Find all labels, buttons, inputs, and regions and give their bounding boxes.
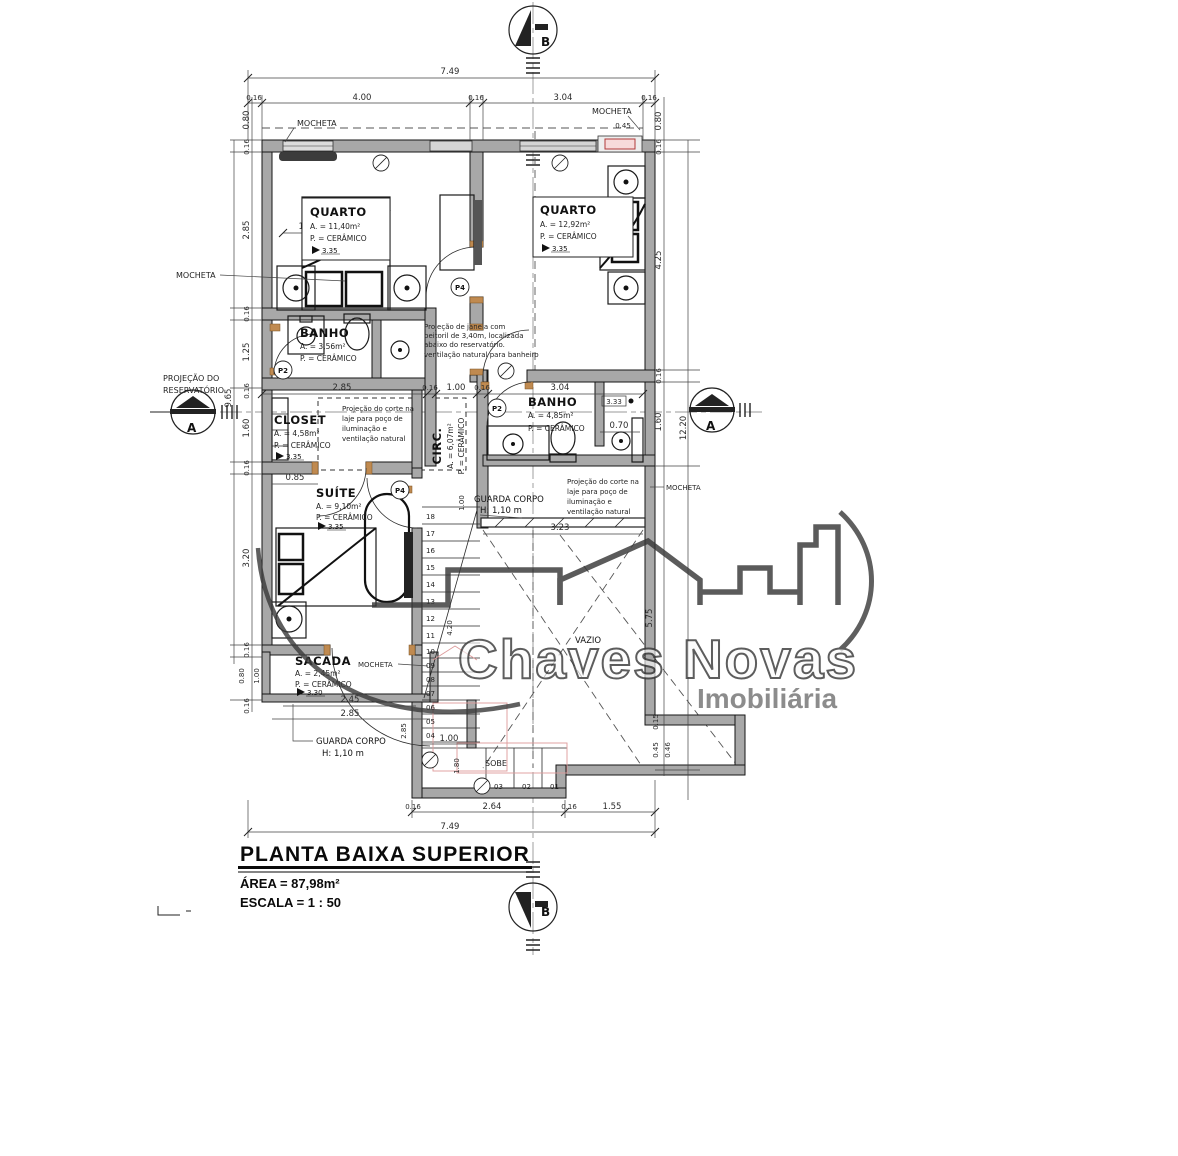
reservoir-projection-label: PROJEÇÃO DO bbox=[163, 373, 219, 383]
dim: 4.20 bbox=[446, 620, 454, 636]
dim: 3.04 bbox=[551, 383, 570, 393]
room-label-suite: SUÍTE bbox=[316, 485, 356, 500]
svg-text:A: A bbox=[706, 419, 716, 433]
stair-step: 01 bbox=[550, 783, 559, 791]
stair-step: 09 bbox=[426, 662, 435, 670]
dim: 0.16 bbox=[405, 803, 421, 811]
room-area: A. = 11,40m² bbox=[310, 222, 360, 231]
dim: 0.16 bbox=[243, 642, 251, 658]
plan-area: ÁREA = 87,98m² bbox=[240, 876, 340, 891]
guardrail-label: GUARDA CORPO bbox=[474, 495, 544, 505]
plan-scale: ESCALA = 1 : 50 bbox=[240, 895, 341, 910]
dim: 0.16 bbox=[243, 383, 251, 399]
window-marker bbox=[552, 155, 568, 171]
watermark-brand: Chaves Novas bbox=[458, 628, 858, 690]
plan-title: PLANTA BAIXA SUPERIOR bbox=[240, 843, 530, 866]
room-floor: P. = CERÂMICO bbox=[316, 513, 373, 522]
window-marker bbox=[373, 155, 389, 171]
room-area: A. = 4,85m² bbox=[528, 411, 573, 420]
mocheta-label: MOCHETA bbox=[176, 271, 216, 280]
room-floor: P. = CERÂMICO bbox=[300, 354, 357, 363]
dim: 3.20 bbox=[242, 549, 252, 568]
dim: 0.16 bbox=[422, 384, 438, 392]
dim: 1.60 bbox=[654, 413, 664, 432]
dim: 2.85 bbox=[242, 221, 252, 240]
wardrobe bbox=[440, 195, 474, 270]
slab-cut-note: iluminação e bbox=[342, 425, 387, 433]
door-marker-p4: P4 bbox=[451, 278, 469, 296]
svg-text:B: B bbox=[541, 905, 550, 919]
room-floor: P. = CERÂMICO bbox=[457, 418, 466, 475]
dim: 0.16 bbox=[655, 368, 663, 384]
stair-step: 14 bbox=[426, 581, 435, 589]
dim: 1.00 bbox=[253, 668, 261, 684]
window-note: ventilação natural para banheiro bbox=[424, 351, 539, 359]
svg-text:P4: P4 bbox=[395, 487, 405, 495]
svg-text:B: B bbox=[541, 35, 550, 49]
room-label-circ: CIRC. bbox=[430, 428, 444, 465]
dim: 0.15 bbox=[652, 714, 660, 730]
room-area: A. = 12,92m² bbox=[540, 220, 590, 229]
room-area: A. = 6,07m² bbox=[446, 423, 455, 468]
dim: 0.80 bbox=[238, 668, 246, 684]
window-marker bbox=[498, 363, 514, 379]
room-label-closet: CLOSET bbox=[274, 413, 326, 427]
dim: 1.00 bbox=[440, 734, 459, 744]
door-marker-p4: P4 bbox=[391, 481, 409, 499]
dim: 0.16 bbox=[246, 94, 262, 102]
floor-plan-page: 7.49 0.16 4.00 0.16 3.04 0.16 0.16 2.64 … bbox=[0, 0, 1178, 1156]
room-label-quarto1: QUARTO bbox=[310, 205, 367, 219]
slab-cut-note: laje para poço de bbox=[342, 415, 403, 423]
dim: 2.85 bbox=[341, 709, 360, 719]
stair-step: 18 bbox=[426, 513, 435, 521]
slab-cut-note: Projeção do corte na bbox=[342, 405, 414, 413]
window-note: abaixo do reservatório. bbox=[424, 341, 505, 349]
dim: 0.46 bbox=[664, 742, 672, 758]
dim: 0.80 bbox=[654, 112, 664, 131]
dim: 1.80 bbox=[453, 758, 461, 774]
stair-step: 07 bbox=[426, 690, 435, 698]
room-floor: P. = CERÂMICO bbox=[310, 234, 367, 243]
room-area: A. = 4,58m² bbox=[274, 429, 319, 438]
dim: 0.16 bbox=[243, 306, 251, 322]
dim: 1.55 bbox=[603, 802, 622, 812]
dim: 1.00 bbox=[447, 383, 466, 393]
dim: 2.85 bbox=[400, 723, 408, 739]
stair-step: 16 bbox=[426, 547, 435, 555]
dim: 3.23 bbox=[551, 523, 570, 533]
svg-text:P2: P2 bbox=[278, 367, 288, 375]
floor-plan-drawing: 7.49 0.16 4.00 0.16 3.04 0.16 0.16 2.64 … bbox=[0, 0, 1178, 1156]
dim: 0.85 bbox=[286, 473, 305, 483]
slab-cut-note: ventilação natural bbox=[342, 435, 406, 443]
dim: 5.75 bbox=[645, 609, 655, 628]
window-note: Projeção de janela com bbox=[424, 323, 506, 331]
stair-step: 04 bbox=[426, 732, 435, 740]
guardrail-label: GUARDA CORPO bbox=[316, 737, 386, 747]
window-note: peitoril de 3,40m, localizada bbox=[424, 332, 524, 340]
dim: 1.00 bbox=[458, 495, 466, 511]
title-block: PLANTA BAIXA SUPERIOR ÁREA = 87,98m² ESC… bbox=[238, 843, 532, 910]
window-quarto1 bbox=[279, 141, 337, 161]
door-marker-p2: P2 bbox=[274, 361, 292, 379]
stair-step: 08 bbox=[426, 676, 435, 684]
mocheta-label: MOCHETA bbox=[592, 107, 632, 116]
dim: 2.45 bbox=[341, 695, 360, 705]
dim: 3.04 bbox=[554, 93, 573, 103]
svg-text:P2: P2 bbox=[492, 405, 502, 413]
dim: 0.16 bbox=[243, 139, 251, 155]
level-marker: 3.35 bbox=[318, 522, 346, 531]
dim: 0.16 bbox=[655, 139, 663, 155]
dim: 2.85 bbox=[333, 383, 352, 393]
dim-bottom-overall: 7.49 bbox=[441, 822, 460, 832]
dim: 0.45 bbox=[652, 742, 660, 758]
dim: 0.16 bbox=[561, 803, 577, 811]
dim: 1.60 bbox=[242, 419, 252, 438]
level-box-banho2: 3.33 bbox=[602, 396, 634, 406]
stair-step: 05 bbox=[426, 718, 435, 726]
stair-step: 12 bbox=[426, 615, 435, 623]
mocheta-label: MOCHETA bbox=[666, 484, 701, 492]
dim: 0.16 bbox=[243, 698, 251, 714]
room-floor: P. = CERÂMICO bbox=[274, 441, 331, 450]
dim: 0.80 bbox=[242, 111, 252, 130]
room-floor: P. = CERÂMICO bbox=[528, 424, 585, 433]
section-marker-a-left: A bbox=[150, 390, 216, 435]
dim: 0.16 bbox=[641, 94, 657, 102]
dim: 0.45 bbox=[615, 122, 631, 130]
dim: 0.16 bbox=[243, 460, 251, 476]
slab-cut-note: iluminação e bbox=[567, 498, 612, 506]
watermark-logo-skyline bbox=[372, 527, 838, 605]
room-label-quarto2: QUARTO bbox=[540, 203, 597, 217]
stair-step: 03 bbox=[494, 783, 503, 791]
dim-left-overall: 9.65 bbox=[224, 389, 234, 408]
door-marker-p2: P2 bbox=[488, 399, 506, 417]
guardrail-height: H: 1,10 m bbox=[480, 506, 522, 516]
dim: 4.25 bbox=[654, 251, 664, 270]
room-label-banho2: BANHO bbox=[528, 395, 577, 409]
slab-cut-note: ventilação natural bbox=[567, 508, 631, 516]
window-quarto2 bbox=[520, 141, 596, 151]
room-label-banho1: BANHO bbox=[300, 326, 349, 340]
dim: 4.00 bbox=[353, 93, 372, 103]
watermark-tagline: Imobiliária bbox=[697, 683, 837, 714]
window-corner-reservoir bbox=[598, 136, 642, 152]
sobe-label: SOBE bbox=[485, 759, 507, 768]
section-marker-a-right: A bbox=[689, 388, 735, 433]
stair-step: 11 bbox=[426, 632, 435, 640]
guardrail-height: H: 1,10 m bbox=[322, 749, 364, 759]
window-marker bbox=[422, 752, 438, 768]
suite-door-leaf bbox=[365, 494, 409, 602]
dim: 0.70 bbox=[610, 421, 629, 431]
dim: 3.33 bbox=[606, 398, 622, 406]
window-top-center bbox=[430, 141, 472, 151]
dim-right-overall: 12.20 bbox=[679, 416, 689, 440]
slab-cut-note: Projeção do corte na bbox=[567, 478, 639, 486]
dim-top-overall: 7.49 bbox=[441, 67, 460, 77]
room-area: A. = 9,10m² bbox=[316, 502, 361, 511]
room-floor: P. = CERÂMICO bbox=[540, 232, 597, 241]
room-area: A. = 3,56m² bbox=[300, 342, 345, 351]
corner-mark bbox=[158, 906, 191, 915]
wardrobe-side bbox=[474, 200, 482, 265]
svg-text:A: A bbox=[187, 421, 197, 435]
suite-door-panel bbox=[404, 532, 413, 598]
mocheta-label: MOCHETA bbox=[358, 661, 393, 669]
mocheta-label: MOCHETA bbox=[297, 119, 337, 128]
stair-step: 15 bbox=[426, 564, 435, 572]
dim: 2.64 bbox=[483, 802, 502, 812]
stair-step: 02 bbox=[522, 783, 531, 791]
dim: 0.16 bbox=[474, 384, 490, 392]
stair-step: 17 bbox=[426, 530, 435, 538]
dim: 1.25 bbox=[242, 343, 252, 362]
stair-step: 10 bbox=[426, 648, 435, 656]
svg-text:P4: P4 bbox=[455, 284, 465, 292]
window-marker bbox=[474, 778, 490, 794]
slab-cut-note: laje para poço de bbox=[567, 488, 628, 496]
dim: 0.16 bbox=[468, 94, 484, 102]
